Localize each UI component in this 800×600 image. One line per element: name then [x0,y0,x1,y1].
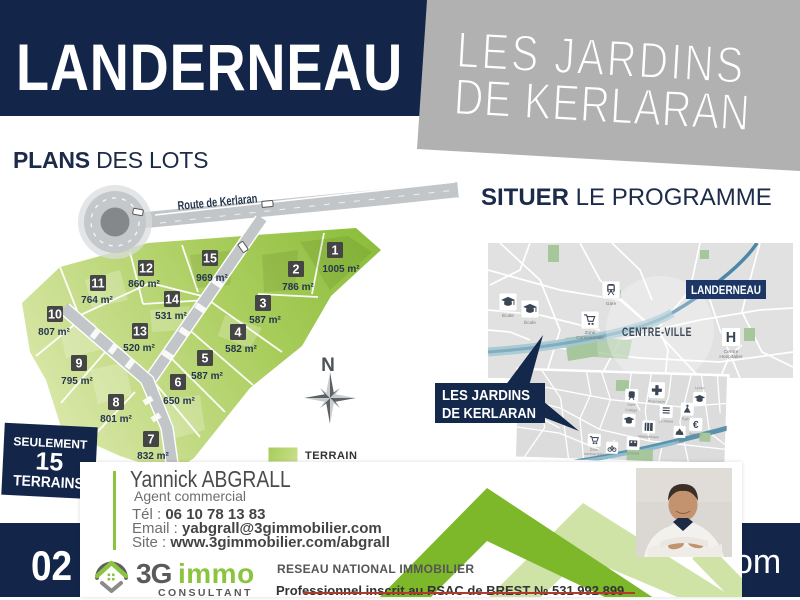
svg-text:Gare: Gare [627,403,635,407]
svg-text:10: 10 [48,308,62,322]
svg-text:Commerciale: Commerciale [576,335,604,340]
svg-text:860 m²: 860 m² [128,279,160,290]
svg-text:587 m²: 587 m² [249,315,281,326]
svg-text:520 m²: 520 m² [123,343,155,354]
svg-text:582 m²: 582 m² [225,344,257,355]
svg-text:Lycée: Lycée [695,386,705,390]
svg-text:8: 8 [113,396,120,410]
svg-text:TERRAIN: TERRAIN [305,450,357,462]
svg-text:LANDERNEAU: LANDERNEAU [691,283,761,297]
svg-text:6: 6 [175,376,182,390]
svg-text:N: N [321,355,335,376]
svg-text:3: 3 [260,297,267,311]
svg-text:École: École [524,319,536,325]
svg-text:CONSULTANT: CONSULTANT [158,587,253,599]
svg-text:807 m²: 807 m² [38,327,70,338]
svg-text:Médiathèque: Médiathèque [638,435,659,440]
svg-text:CENTRE-VILLE: CENTRE-VILLE [622,325,692,339]
svg-text:Gare: Gare [606,301,617,306]
svg-text:Centre: Centre [724,349,739,355]
svg-text:H: H [726,330,736,346]
svg-text:4: 4 [235,326,242,340]
svg-text:9: 9 [76,357,83,371]
svg-text:École: École [502,312,514,318]
svg-text:795 m²: 795 m² [61,376,93,387]
svg-text:764 m²: 764 m² [81,295,113,306]
svg-text:Zone: Zone [585,330,596,335]
svg-text:commerciale: commerciale [584,452,604,457]
svg-text:14: 14 [165,293,179,307]
svg-text:1: 1 [332,244,339,258]
svg-text:15: 15 [203,252,217,266]
svg-text:Le Mairie: Le Mairie [658,419,673,423]
svg-text:531 m²: 531 m² [155,311,187,322]
svg-text:Musée: Musée [674,439,685,443]
svg-text:DE KERLARAN: DE KERLARAN [442,405,536,422]
svg-text:7: 7 [148,433,155,447]
svg-text:587 m²: 587 m² [191,371,223,382]
svg-text:650 m²: 650 m² [163,396,195,407]
svg-text:786 m²: 786 m² [282,282,314,293]
svg-text:11: 11 [91,277,104,291]
svg-text:Collège: Collège [625,408,637,412]
svg-text:Hospitalier: Hospitalier [719,354,743,360]
svg-text:3G: 3G [136,558,172,589]
svg-text:Banque: Banque [689,432,702,436]
svg-text:832 m²: 832 m² [137,451,169,462]
svg-text:Pharmacie: Pharmacie [648,399,665,404]
svg-text:LES JARDINS: LES JARDINS [442,387,530,404]
svg-text:immo: immo [178,558,255,589]
svg-text:Cinéma: Cinéma [627,451,640,455]
svg-text:969 m²: 969 m² [196,273,228,284]
svg-text:12: 12 [139,262,153,276]
svg-text:1005 m²: 1005 m² [322,264,360,275]
svg-text:€: € [693,420,699,431]
svg-text:13: 13 [133,325,147,339]
svg-text:2: 2 [293,263,300,277]
svg-text:801 m²: 801 m² [100,414,132,425]
svg-text:5: 5 [202,352,209,366]
